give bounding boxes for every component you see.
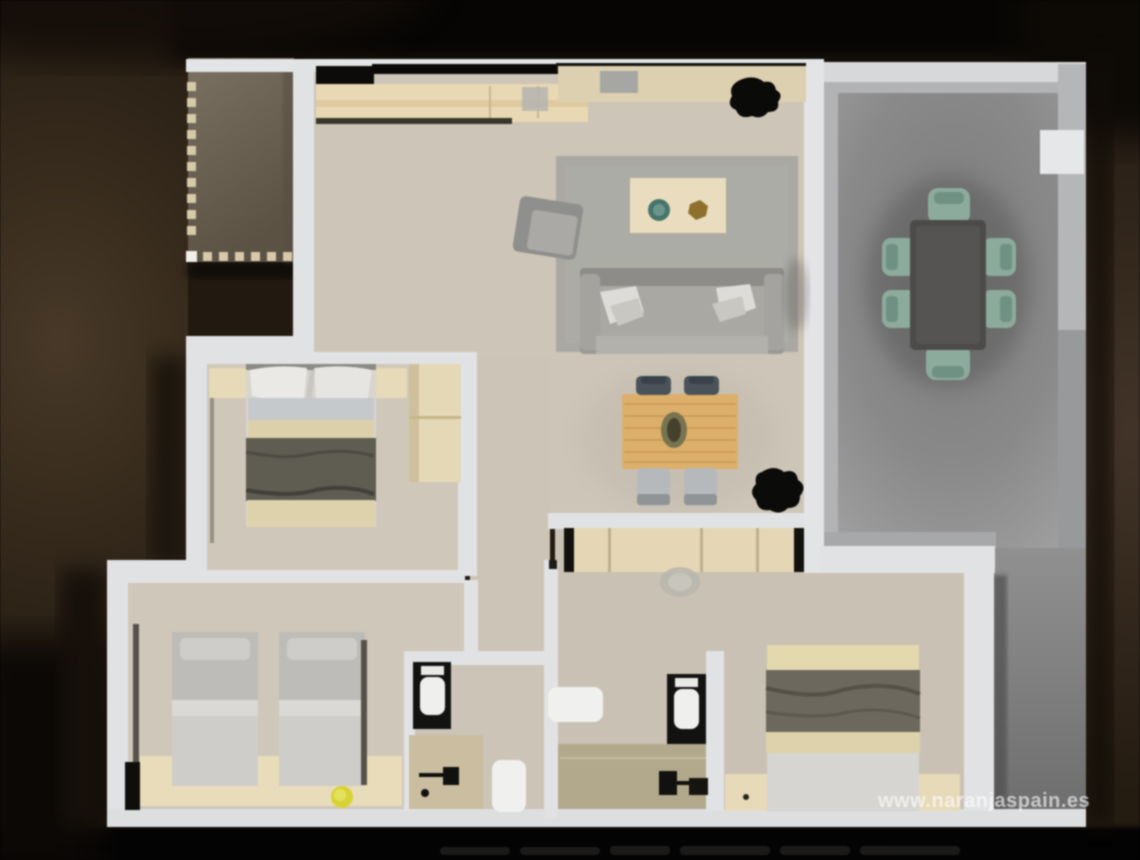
svg-text:www.naranjaspain.es: www.naranjaspain.es [877, 790, 1090, 812]
